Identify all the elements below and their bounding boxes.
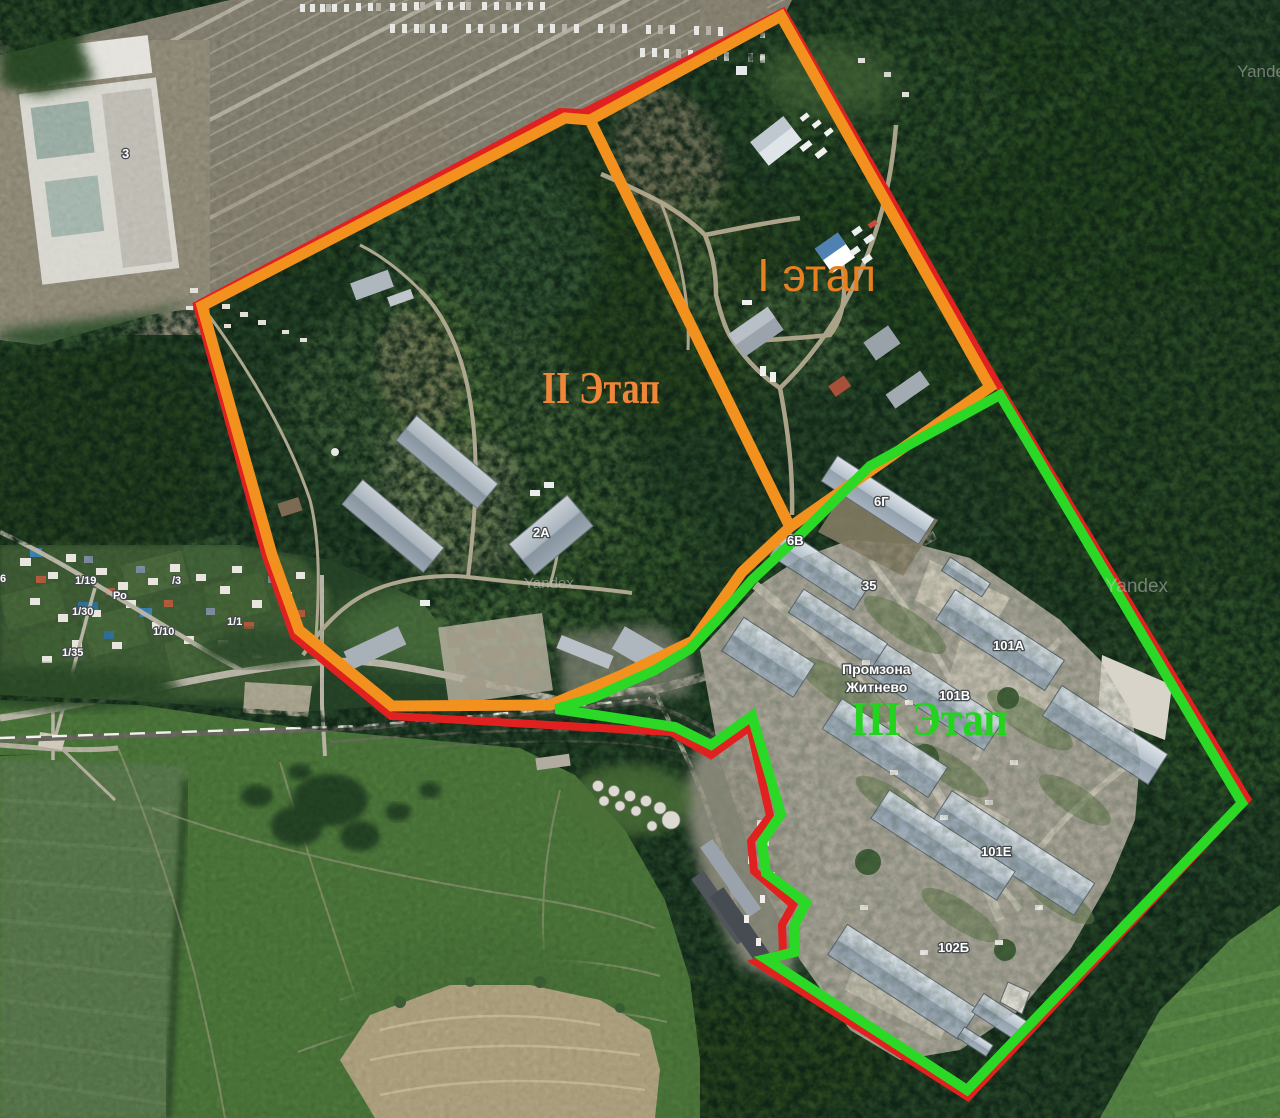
- svg-text:I этап: I этап: [757, 249, 876, 301]
- svg-text:Yandex: Yandex: [1237, 62, 1280, 81]
- svg-text:35: 35: [862, 578, 876, 593]
- svg-text:1/19: 1/19: [75, 575, 96, 587]
- svg-text:II Этап: II Этап: [542, 362, 660, 413]
- svg-text:Yandex: Yandex: [1105, 576, 1169, 597]
- svg-text:101Е: 101Е: [981, 844, 1012, 859]
- svg-text:101В: 101В: [939, 688, 970, 703]
- svg-text:3: 3: [122, 146, 129, 161]
- svg-text:102Б: 102Б: [938, 940, 969, 955]
- svg-text:1/30: 1/30: [72, 606, 93, 618]
- svg-text:Житнево: Житнево: [845, 679, 907, 695]
- svg-text:Промзона: Промзона: [842, 661, 911, 677]
- svg-text:1/35: 1/35: [62, 647, 83, 659]
- svg-text:/3: /3: [172, 575, 181, 587]
- svg-text:101А: 101А: [993, 638, 1025, 653]
- svg-text:6Г: 6Г: [874, 494, 889, 509]
- svg-text:Yandex: Yandex: [524, 575, 574, 592]
- svg-text:6: 6: [0, 573, 6, 585]
- svg-text:6В: 6В: [787, 533, 804, 548]
- svg-text:III Этап: III Этап: [851, 691, 1008, 746]
- svg-text:2А: 2А: [533, 525, 550, 540]
- svg-text:1/10: 1/10: [153, 626, 174, 638]
- svg-text:Ро: Ро: [113, 590, 127, 602]
- svg-text:1/1: 1/1: [227, 616, 242, 628]
